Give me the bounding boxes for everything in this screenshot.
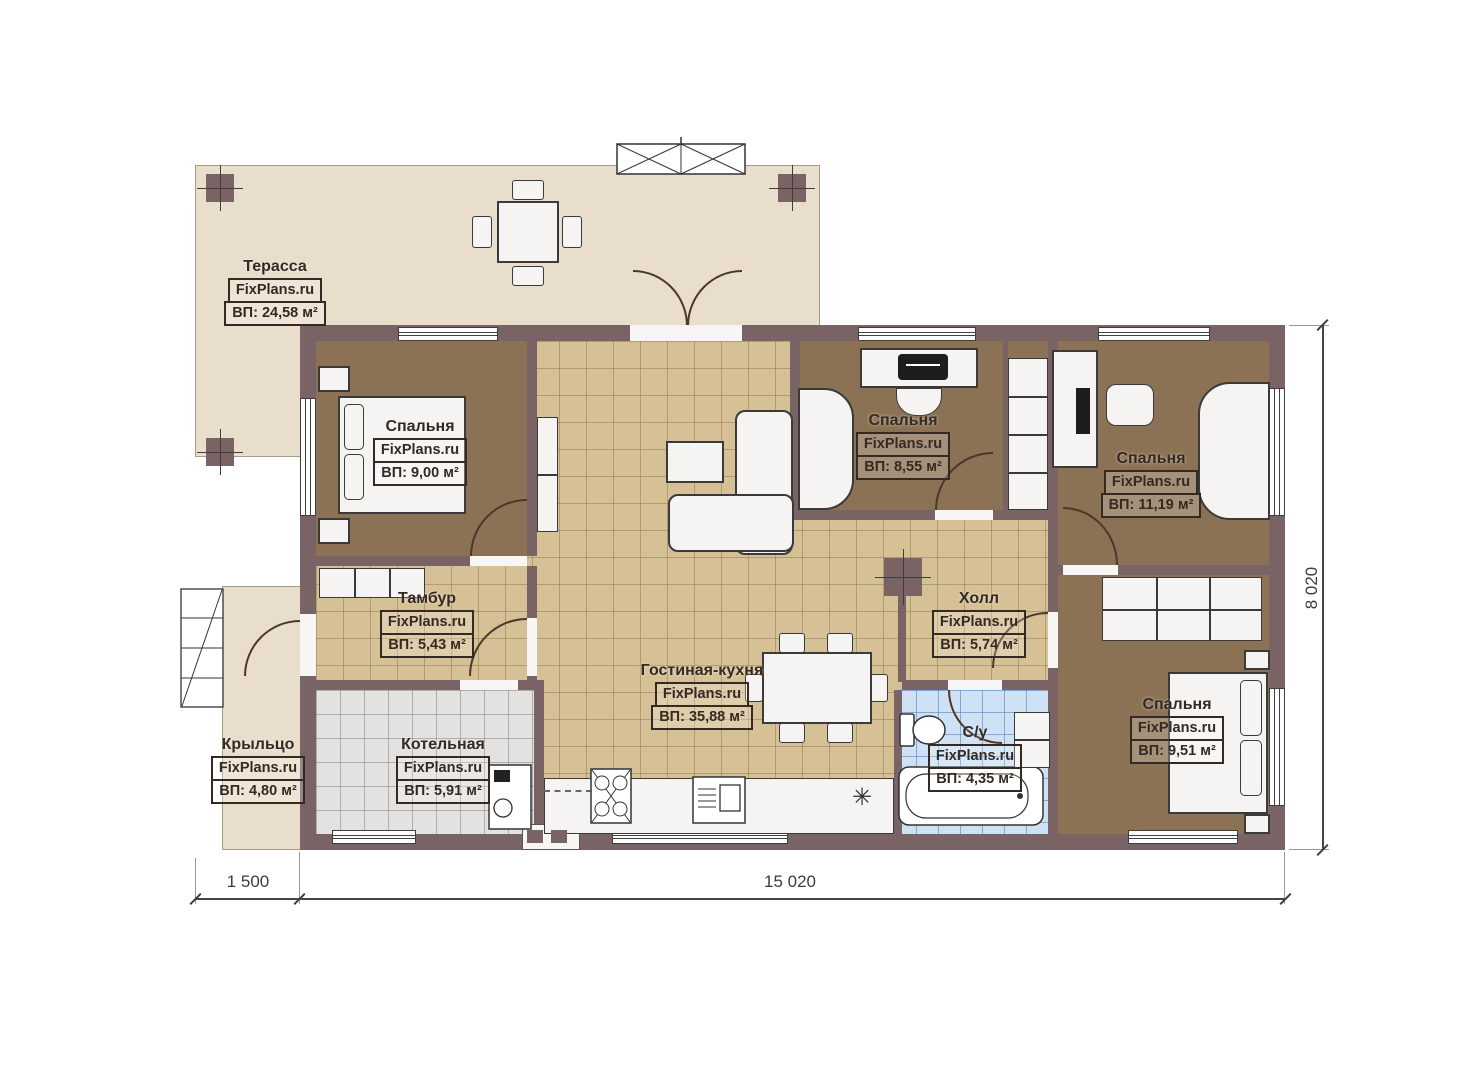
room-name: Крыльцо [222, 736, 295, 754]
room-label-boiler: Котельная FixPlans.ru ВП: 5,91 м² [378, 736, 508, 804]
room-name: Котельная [401, 736, 485, 754]
wall [790, 510, 935, 520]
door-opening [1063, 565, 1118, 575]
dimension-line-bottom [195, 898, 1285, 900]
opening-dashed-line [544, 790, 592, 792]
room-label-tambour: Тамбур FixPlans.ru ВП: 5,43 м² [362, 590, 492, 658]
room-label-porch: Крыльцо FixPlans.ru ВП: 4,80 м² [202, 736, 314, 804]
tv-unit [537, 417, 558, 532]
area-box: ВП: 5,43 м² [380, 633, 474, 658]
room-label-hall: Холл FixPlans.ru ВП: 5,74 м² [916, 590, 1042, 658]
wall [1118, 565, 1269, 575]
watermark-box: FixPlans.ru [1104, 470, 1198, 495]
bedroom4-nightstand [1244, 650, 1270, 670]
door-opening [460, 680, 518, 690]
door-opening [948, 680, 1002, 690]
wardrobe [1008, 358, 1048, 510]
dimension-porch-width: 1 500 [200, 872, 296, 892]
window [1098, 327, 1210, 341]
watermark-box: FixPlans.ru [1130, 716, 1224, 741]
door-opening [470, 556, 527, 566]
room-name: Спальня [868, 412, 937, 430]
area-box: ВП: 9,00 м² [373, 461, 467, 486]
entry-door-opening [300, 614, 316, 676]
room-label-bedroom3: Спальня FixPlans.ru ВП: 11,19 м² [1086, 450, 1216, 518]
printer [898, 354, 948, 380]
window [300, 398, 316, 516]
dining-chair [827, 723, 853, 743]
area-box: ВП: 5,91 м² [396, 779, 490, 804]
area-box: ВП: 24,58 м² [224, 301, 326, 326]
sofa-chaise [668, 494, 794, 552]
desk-chair [1106, 384, 1154, 426]
terrace-chair [512, 266, 544, 286]
room-name: Спальня [1116, 450, 1185, 468]
window [398, 327, 498, 341]
fridge-icon: ✳ [852, 786, 872, 810]
floor-plan-canvas: ✳ Терасса [0, 0, 1473, 1080]
wall [316, 556, 470, 566]
watermark-box: FixPlans.ru [856, 432, 950, 457]
room-label-bathroom: С/у FixPlans.ru ВП: 4,35 м² [912, 724, 1038, 792]
dimension-line-right [1322, 325, 1324, 850]
pier-post [527, 830, 543, 843]
room-label-living-kitchen: Гостиная-кухня FixPlans.ru ВП: 35,88 м² [612, 662, 792, 730]
porch-steps-icon [180, 588, 224, 708]
area-box: ВП: 11,19 м² [1101, 493, 1202, 518]
pillow [1240, 680, 1262, 736]
dimension-house-width: 15 020 [735, 872, 845, 892]
terrace-column [206, 174, 234, 202]
room-label-bedroom4: Спальня FixPlans.ru ВП: 9,51 м² [1112, 696, 1242, 764]
sink-unit-icon [692, 776, 746, 824]
bedroom1-nightstand [318, 518, 350, 544]
terrace-door-opening [630, 325, 742, 341]
area-box: ВП: 4,35 м² [928, 767, 1022, 792]
window [332, 830, 416, 844]
watermark-box: FixPlans.ru [928, 744, 1022, 769]
wall [898, 596, 906, 682]
monitor [1076, 388, 1090, 434]
terrace-column [778, 174, 806, 202]
coffee-table [666, 441, 724, 483]
room-name: Терасса [243, 258, 306, 276]
dining-chair [779, 633, 805, 653]
stove-icon [590, 768, 632, 824]
room-label-bedroom1: Спальня FixPlans.ru ВП: 9,00 м² [355, 418, 485, 486]
room-label-terrace: Терасса FixPlans.ru ВП: 24,58 м² [200, 258, 350, 326]
extension-line [1284, 852, 1285, 904]
dining-chair [870, 674, 888, 702]
terrace-chair [472, 216, 492, 248]
room-name: Гостиная-кухня [641, 662, 764, 680]
area-box: ВП: 4,80 м² [211, 779, 305, 804]
pillow [1240, 740, 1262, 796]
watermark-box: FixPlans.ru [228, 278, 322, 303]
door-opening [527, 618, 537, 676]
area-box: ВП: 9,51 м² [1130, 739, 1224, 764]
room-name: С/у [963, 724, 988, 742]
room-name: Спальня [1142, 696, 1211, 714]
terrace-chair [562, 216, 582, 248]
watermark-box: FixPlans.ru [932, 610, 1026, 635]
window [858, 327, 976, 341]
door-opening [935, 510, 993, 520]
watermark-box: FixPlans.ru [396, 756, 490, 781]
door-opening [1048, 612, 1058, 668]
bedroom1-nightstand [318, 366, 350, 392]
watermark-box: FixPlans.ru [380, 610, 474, 635]
area-box: ВП: 35,88 м² [651, 705, 753, 730]
dimension-house-depth: 8 020 [1302, 548, 1322, 628]
watermark-box: FixPlans.ru [211, 756, 305, 781]
area-box: ВП: 8,55 м² [856, 455, 950, 480]
terrace-chair [512, 180, 544, 200]
room-name: Тамбур [398, 590, 456, 608]
terrace-table [497, 201, 559, 263]
wall [993, 510, 1048, 520]
terrace-column [206, 438, 234, 466]
area-box: ВП: 5,74 м² [932, 633, 1026, 658]
window [1269, 688, 1285, 806]
room-name: Спальня [385, 418, 454, 436]
watermark-box: FixPlans.ru [373, 438, 467, 463]
terrace-steps-icon [616, 136, 746, 176]
bedroom4-closet [1102, 577, 1262, 641]
pier-post [551, 830, 567, 843]
wall [534, 690, 544, 834]
room-name: Холл [959, 590, 999, 608]
bedroom4-nightstand [1244, 814, 1270, 834]
room-label-bedroom2: Спальня FixPlans.ru ВП: 8,55 м² [838, 412, 968, 480]
watermark-box: FixPlans.ru [655, 682, 749, 707]
dining-chair [827, 633, 853, 653]
window [1269, 388, 1285, 516]
wall [527, 341, 537, 556]
window [1128, 830, 1238, 844]
